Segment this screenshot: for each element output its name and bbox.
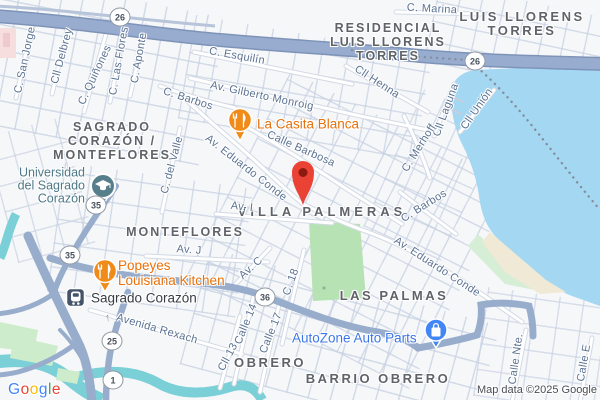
train-station-icon[interactable] [67, 289, 85, 307]
route-shield-25: 25 [102, 332, 123, 351]
district-label-villa-palmeras: VILLA PALMERAS [238, 205, 407, 219]
route-shield-35: 35 [86, 196, 107, 215]
map-attribution: Map data ©2025 Google [477, 384, 597, 396]
district-label-sagrado-monteflores: SAGRADO CORAZÓN / MONTEFLORES [53, 120, 171, 162]
map-canvas[interactable]: RESIDENCIAL LUIS LLORENS TORRES LUIS LLO… [0, 0, 600, 400]
district-label-las-palmas: LAS PALMAS [340, 289, 449, 303]
poi-label-autozone[interactable]: AutoZone Auto Parts [292, 331, 417, 346]
district-label-monteflores: MONTEFLORES [126, 225, 244, 239]
route-shield-36: 36 [255, 288, 276, 307]
la-casita-blanca-marker[interactable] [229, 109, 252, 142]
hospital-building [3, 33, 10, 47]
google-logo[interactable]: Google [8, 381, 61, 399]
canal [0, 214, 16, 258]
district-label-residencial: RESIDENCIAL LUIS LLORENS TORRES [330, 21, 446, 63]
poi-label-sagrado-corazon-station[interactable]: Sagrado Corazón [91, 291, 197, 306]
route-shield-35: 35 [60, 246, 81, 265]
street-label-marina: C. Marina [407, 2, 458, 17]
shopping-bag-icon [432, 328, 441, 337]
poi-label-la-casita-blanca[interactable]: La Casita Blanca [257, 117, 359, 132]
district-label-barrio-obrero: BARRIO OBRERO [306, 372, 450, 386]
poi-label-popeyes[interactable]: Popeyes Louisiana Kitchen [118, 258, 225, 288]
park-dot [322, 286, 325, 289]
street-label-av-j: Av. J [176, 243, 202, 257]
district-label-llorens: LUIS LLORENS TORRES [459, 10, 584, 38]
poi-label-universidad[interactable]: Universidad del Sagrado Corazón [18, 167, 85, 206]
route-shield-26: 26 [465, 52, 486, 71]
route-shield-26: 26 [110, 8, 131, 27]
street-label-av-i: Av. I [230, 200, 254, 214]
route-shield-1: 1 [103, 371, 124, 390]
district-label-obrero: OBRERO [234, 356, 306, 370]
popeyes-marker[interactable] [94, 260, 117, 293]
